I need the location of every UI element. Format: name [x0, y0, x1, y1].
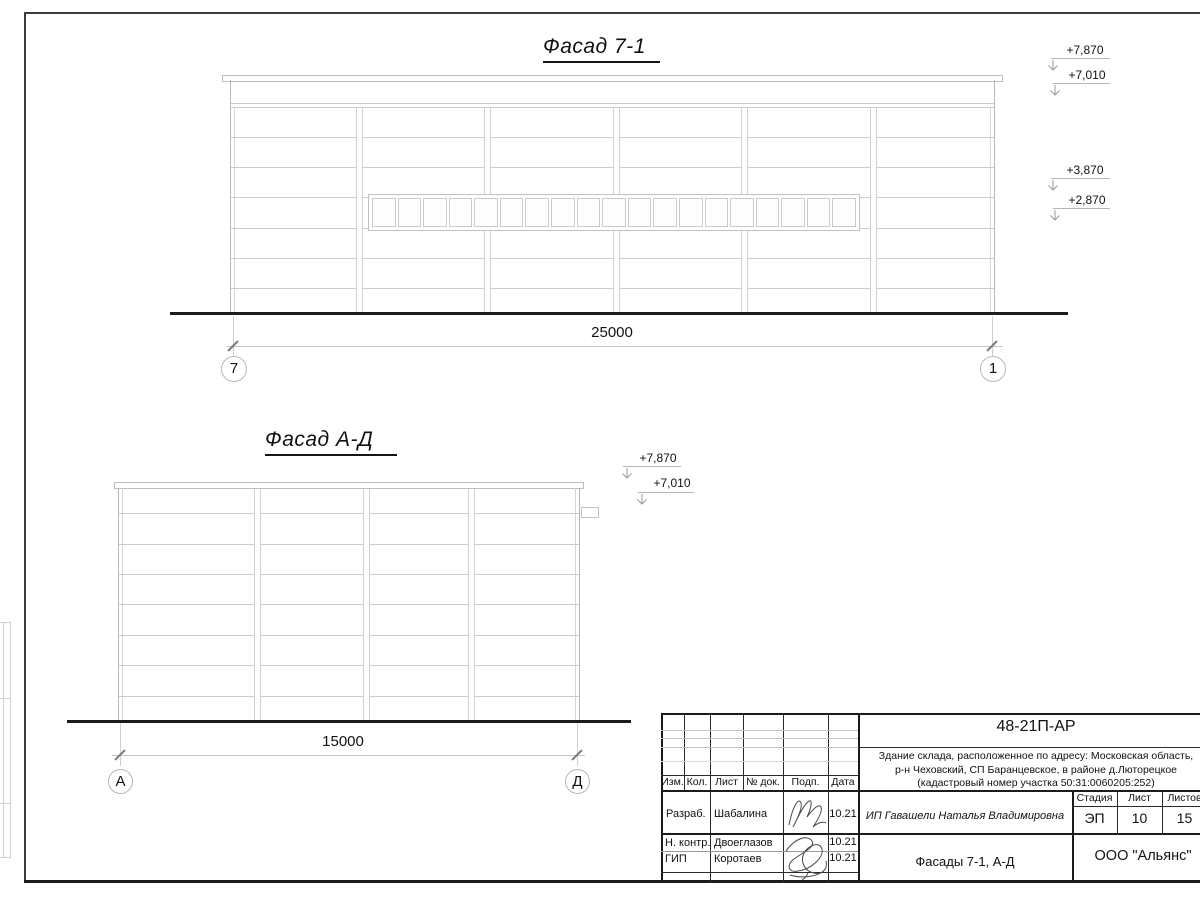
extension-line: [120, 723, 121, 766]
signature-scribble: [783, 793, 828, 833]
stamp-col-doc: № док.: [743, 776, 783, 789]
column-line: [468, 489, 475, 721]
elevation-level-line: [1051, 178, 1110, 179]
margin-strip-line: [0, 622, 10, 623]
panel-joint-line: [119, 696, 579, 697]
project-description-line: (кадастровый номер участка 50:31:0060205…: [858, 777, 1200, 791]
elevation-label: +3,870: [1062, 163, 1108, 177]
ground-line: [170, 312, 1068, 315]
margin-strip-line: [0, 698, 10, 699]
facade-7-1-band-line: [230, 103, 995, 104]
axis-bubble-d: Д: [565, 769, 590, 794]
facade-7-1-title: Фасад 7-1: [543, 35, 660, 63]
elevation-level-line: [623, 466, 681, 467]
sheet-title: Фасады 7-1, А-Д: [858, 854, 1072, 869]
stamp-line: [661, 747, 858, 748]
canopy-tab: [581, 507, 599, 518]
project-description-line: р-н Чеховский, СП Баранцевское, в районе…: [858, 764, 1200, 778]
window-pane: [577, 198, 601, 227]
stamp-col-kol: Кол.: [684, 776, 710, 789]
panel-joint-line: [119, 604, 579, 605]
margin-strip-line: [0, 857, 10, 858]
elevation-arrow-icon: [636, 494, 650, 507]
axis-bubble-1: 1: [980, 356, 1006, 382]
axis-bubble-a: А: [108, 769, 133, 794]
sheets-total: 15: [1162, 810, 1200, 826]
stamp-line: [661, 833, 1200, 835]
ground-line: [67, 720, 631, 723]
elevation-label: +2,870: [1064, 193, 1110, 207]
facade-ad-wall-edge: [579, 488, 580, 722]
elevation-arrow-icon: [621, 468, 635, 481]
window-pane: [832, 198, 856, 227]
stamp-border: [661, 713, 1200, 715]
window-pane: [398, 198, 422, 227]
stamp-col-data: Дата: [828, 776, 858, 789]
frame-left: [24, 12, 26, 883]
stamp-line: [1072, 806, 1200, 807]
facade-7-1-roof: [222, 75, 1003, 82]
doc-number: 48-21П-АР: [858, 718, 1200, 736]
dimension-value: 25000: [562, 324, 662, 341]
elevation-label: +7,870: [1062, 43, 1108, 57]
sheet-label: Лист: [1117, 792, 1162, 805]
window-pane: [653, 198, 677, 227]
role-label: ГИП: [665, 853, 687, 866]
margin-strip-line: [0, 803, 10, 804]
window-pane: [449, 198, 473, 227]
elevation-label: +7,870: [634, 451, 682, 465]
elevation-level-line: [1051, 58, 1110, 59]
facade-ad-wall-edge: [575, 488, 576, 722]
facade-ad-title: Фасад А-Д: [265, 428, 397, 456]
window-pane: [525, 198, 549, 227]
elevation-label: +7,010: [648, 476, 696, 490]
role-name: Коротаев: [714, 853, 762, 866]
elevation-level-line: [638, 492, 694, 493]
role-date: 10.21: [828, 808, 858, 821]
role-label: Н. контр.: [665, 837, 710, 850]
panel-joint-line: [119, 513, 579, 514]
project-description: Здание склада, расположенное по адресу: …: [858, 750, 1200, 791]
stamp-line: [858, 747, 1200, 748]
facade-7-1-wall-edge: [994, 80, 995, 314]
role-label: Разраб.: [666, 808, 706, 821]
window-pane: [705, 198, 729, 227]
window-pane: [372, 198, 396, 227]
elevation-arrow-icon: [1049, 85, 1063, 98]
margin-strip-line: [3, 622, 4, 858]
stage-value: ЭП: [1072, 810, 1117, 826]
frame-top: [24, 12, 1200, 14]
sheets-label: Листов: [1162, 792, 1200, 805]
stage-label: Стадия: [1072, 792, 1117, 805]
elevation-arrow-icon: [1049, 210, 1063, 223]
extension-line: [233, 316, 234, 357]
elevation-level-line: [1053, 208, 1110, 209]
window-pane: [423, 198, 447, 227]
window-pane: [474, 198, 498, 227]
project-description-line: Здание склада, расположенное по адресу: …: [858, 750, 1200, 764]
facade-ad-roof: [114, 482, 584, 489]
axis-bubble-7: 7: [221, 356, 247, 382]
sheet-number: 10: [1117, 810, 1162, 826]
stamp-col-izm: Изм.: [661, 776, 684, 789]
window-pane: [807, 198, 831, 227]
panel-joint-line: [119, 665, 579, 666]
elevation-label: +7,010: [1064, 68, 1110, 82]
column-line: [870, 108, 877, 314]
title-block: Изм. Кол. Лист № док. Подп. Дата 48-21П-…: [661, 713, 1200, 883]
panel-joint-line: [119, 635, 579, 636]
panel-joint-line: [119, 574, 579, 575]
column-line: [254, 489, 261, 721]
window-pane: [730, 198, 754, 227]
stamp-col-podp: Подп.: [783, 776, 828, 789]
panel-joint-line: [119, 544, 579, 545]
company-name: ООО "Альянс": [1072, 848, 1200, 864]
dimension-line: [112, 755, 585, 756]
facade-7-1-wall-edge: [990, 107, 991, 314]
extension-line: [577, 723, 578, 766]
stamp-line: [661, 761, 858, 762]
client-name: ИП Гавашели Наталья Владимировна: [858, 810, 1072, 822]
window-pane: [756, 198, 780, 227]
signature-scribble: [778, 831, 833, 881]
facade-ad-wall-edge: [118, 488, 119, 722]
dimension-value: 15000: [293, 733, 393, 750]
window-pane: [500, 198, 524, 227]
dimension-line: [227, 346, 1003, 347]
column-line: [363, 489, 370, 721]
drawing-sheet: Фасад 7-1 25000 7 1 +7,870 +7,010 +3,870…: [0, 0, 1200, 900]
role-name: Двоеглазов: [714, 837, 772, 850]
stamp-line: [661, 738, 858, 739]
window-pane: [781, 198, 805, 227]
facade-ad-wall-edge: [122, 488, 123, 722]
elevation-arrow-icon: [1047, 60, 1061, 73]
window-pane: [679, 198, 703, 227]
elevation-level-line: [1053, 83, 1110, 84]
elevation-arrow-icon: [1047, 180, 1061, 193]
window-pane: [628, 198, 652, 227]
margin-strip-line: [10, 622, 11, 858]
window-pane: [551, 198, 575, 227]
facade-7-1-wall-edge: [234, 107, 235, 314]
column-line: [356, 108, 363, 314]
extension-line: [992, 316, 993, 357]
window-pane: [602, 198, 626, 227]
stamp-line: [661, 730, 858, 731]
stamp-col-list: Лист: [710, 776, 743, 789]
window-strip: [368, 194, 860, 231]
role-name: Шабалина: [714, 808, 767, 821]
